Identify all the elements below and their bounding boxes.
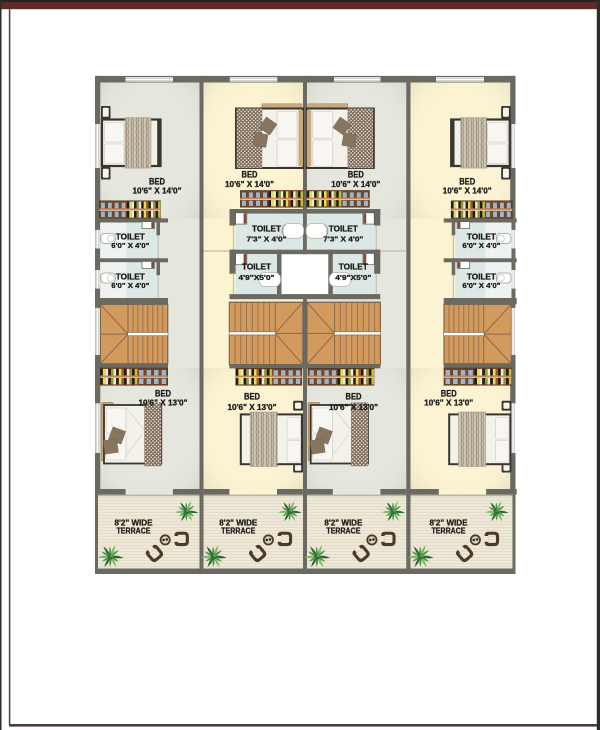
svg-text:BED: BED bbox=[348, 170, 364, 180]
svg-text:7'3" X 4'0": 7'3" X 4'0" bbox=[323, 235, 363, 244]
svg-text:TOILET: TOILET bbox=[329, 225, 358, 234]
svg-text:BED: BED bbox=[242, 170, 258, 180]
svg-text:TOILET: TOILET bbox=[252, 225, 281, 234]
svg-text:BED: BED bbox=[149, 177, 165, 187]
svg-text:TERRACE: TERRACE bbox=[221, 526, 255, 536]
svg-text:6'0" X 4'0": 6'0" X 4'0" bbox=[462, 241, 500, 250]
svg-text:10'6" X 13'0": 10'6" X 13'0" bbox=[139, 399, 188, 408]
svg-text:TOILET: TOILET bbox=[116, 232, 145, 241]
svg-text:10'6" X 13'0": 10'6" X 13'0" bbox=[329, 403, 378, 412]
svg-text:TOILET: TOILET bbox=[467, 272, 496, 281]
svg-text:TOILET: TOILET bbox=[116, 272, 145, 281]
svg-text:TOILET: TOILET bbox=[339, 263, 368, 272]
svg-text:10'6" X 13'0": 10'6" X 13'0" bbox=[424, 399, 473, 408]
svg-text:7'3" X 4'0": 7'3" X 4'0" bbox=[247, 235, 287, 244]
svg-text:TOILET: TOILET bbox=[467, 232, 496, 241]
svg-text:4'9"X5'0": 4'9"X5'0" bbox=[239, 273, 275, 282]
svg-text:TERRACE: TERRACE bbox=[326, 526, 360, 536]
svg-text:BED: BED bbox=[346, 391, 362, 401]
svg-text:TERRACE: TERRACE bbox=[117, 526, 151, 536]
svg-text:BED: BED bbox=[459, 177, 475, 187]
svg-text:4'9"X5'0": 4'9"X5'0" bbox=[335, 273, 371, 282]
svg-text:10'6" X 13'0": 10'6" X 13'0" bbox=[228, 403, 277, 412]
svg-text:6'0" X 4'0": 6'0" X 4'0" bbox=[462, 281, 500, 290]
svg-text:10'6" X 14'0": 10'6" X 14'0" bbox=[133, 187, 182, 196]
svg-text:6'0" X 4'0": 6'0" X 4'0" bbox=[111, 281, 149, 290]
svg-text:BED: BED bbox=[155, 388, 171, 398]
svg-text:10'6" X 14'0": 10'6" X 14'0" bbox=[225, 180, 274, 189]
svg-text:10'6" X 14'0": 10'6" X 14'0" bbox=[443, 187, 492, 196]
svg-text:BED: BED bbox=[441, 388, 457, 398]
svg-text:TERRACE: TERRACE bbox=[432, 526, 466, 536]
svg-text:BED: BED bbox=[244, 391, 260, 401]
svg-text:TOILET: TOILET bbox=[242, 263, 271, 272]
svg-text:6'0" X 4'0": 6'0" X 4'0" bbox=[111, 241, 149, 250]
svg-text:10'6" X 14'0": 10'6" X 14'0" bbox=[331, 180, 380, 189]
